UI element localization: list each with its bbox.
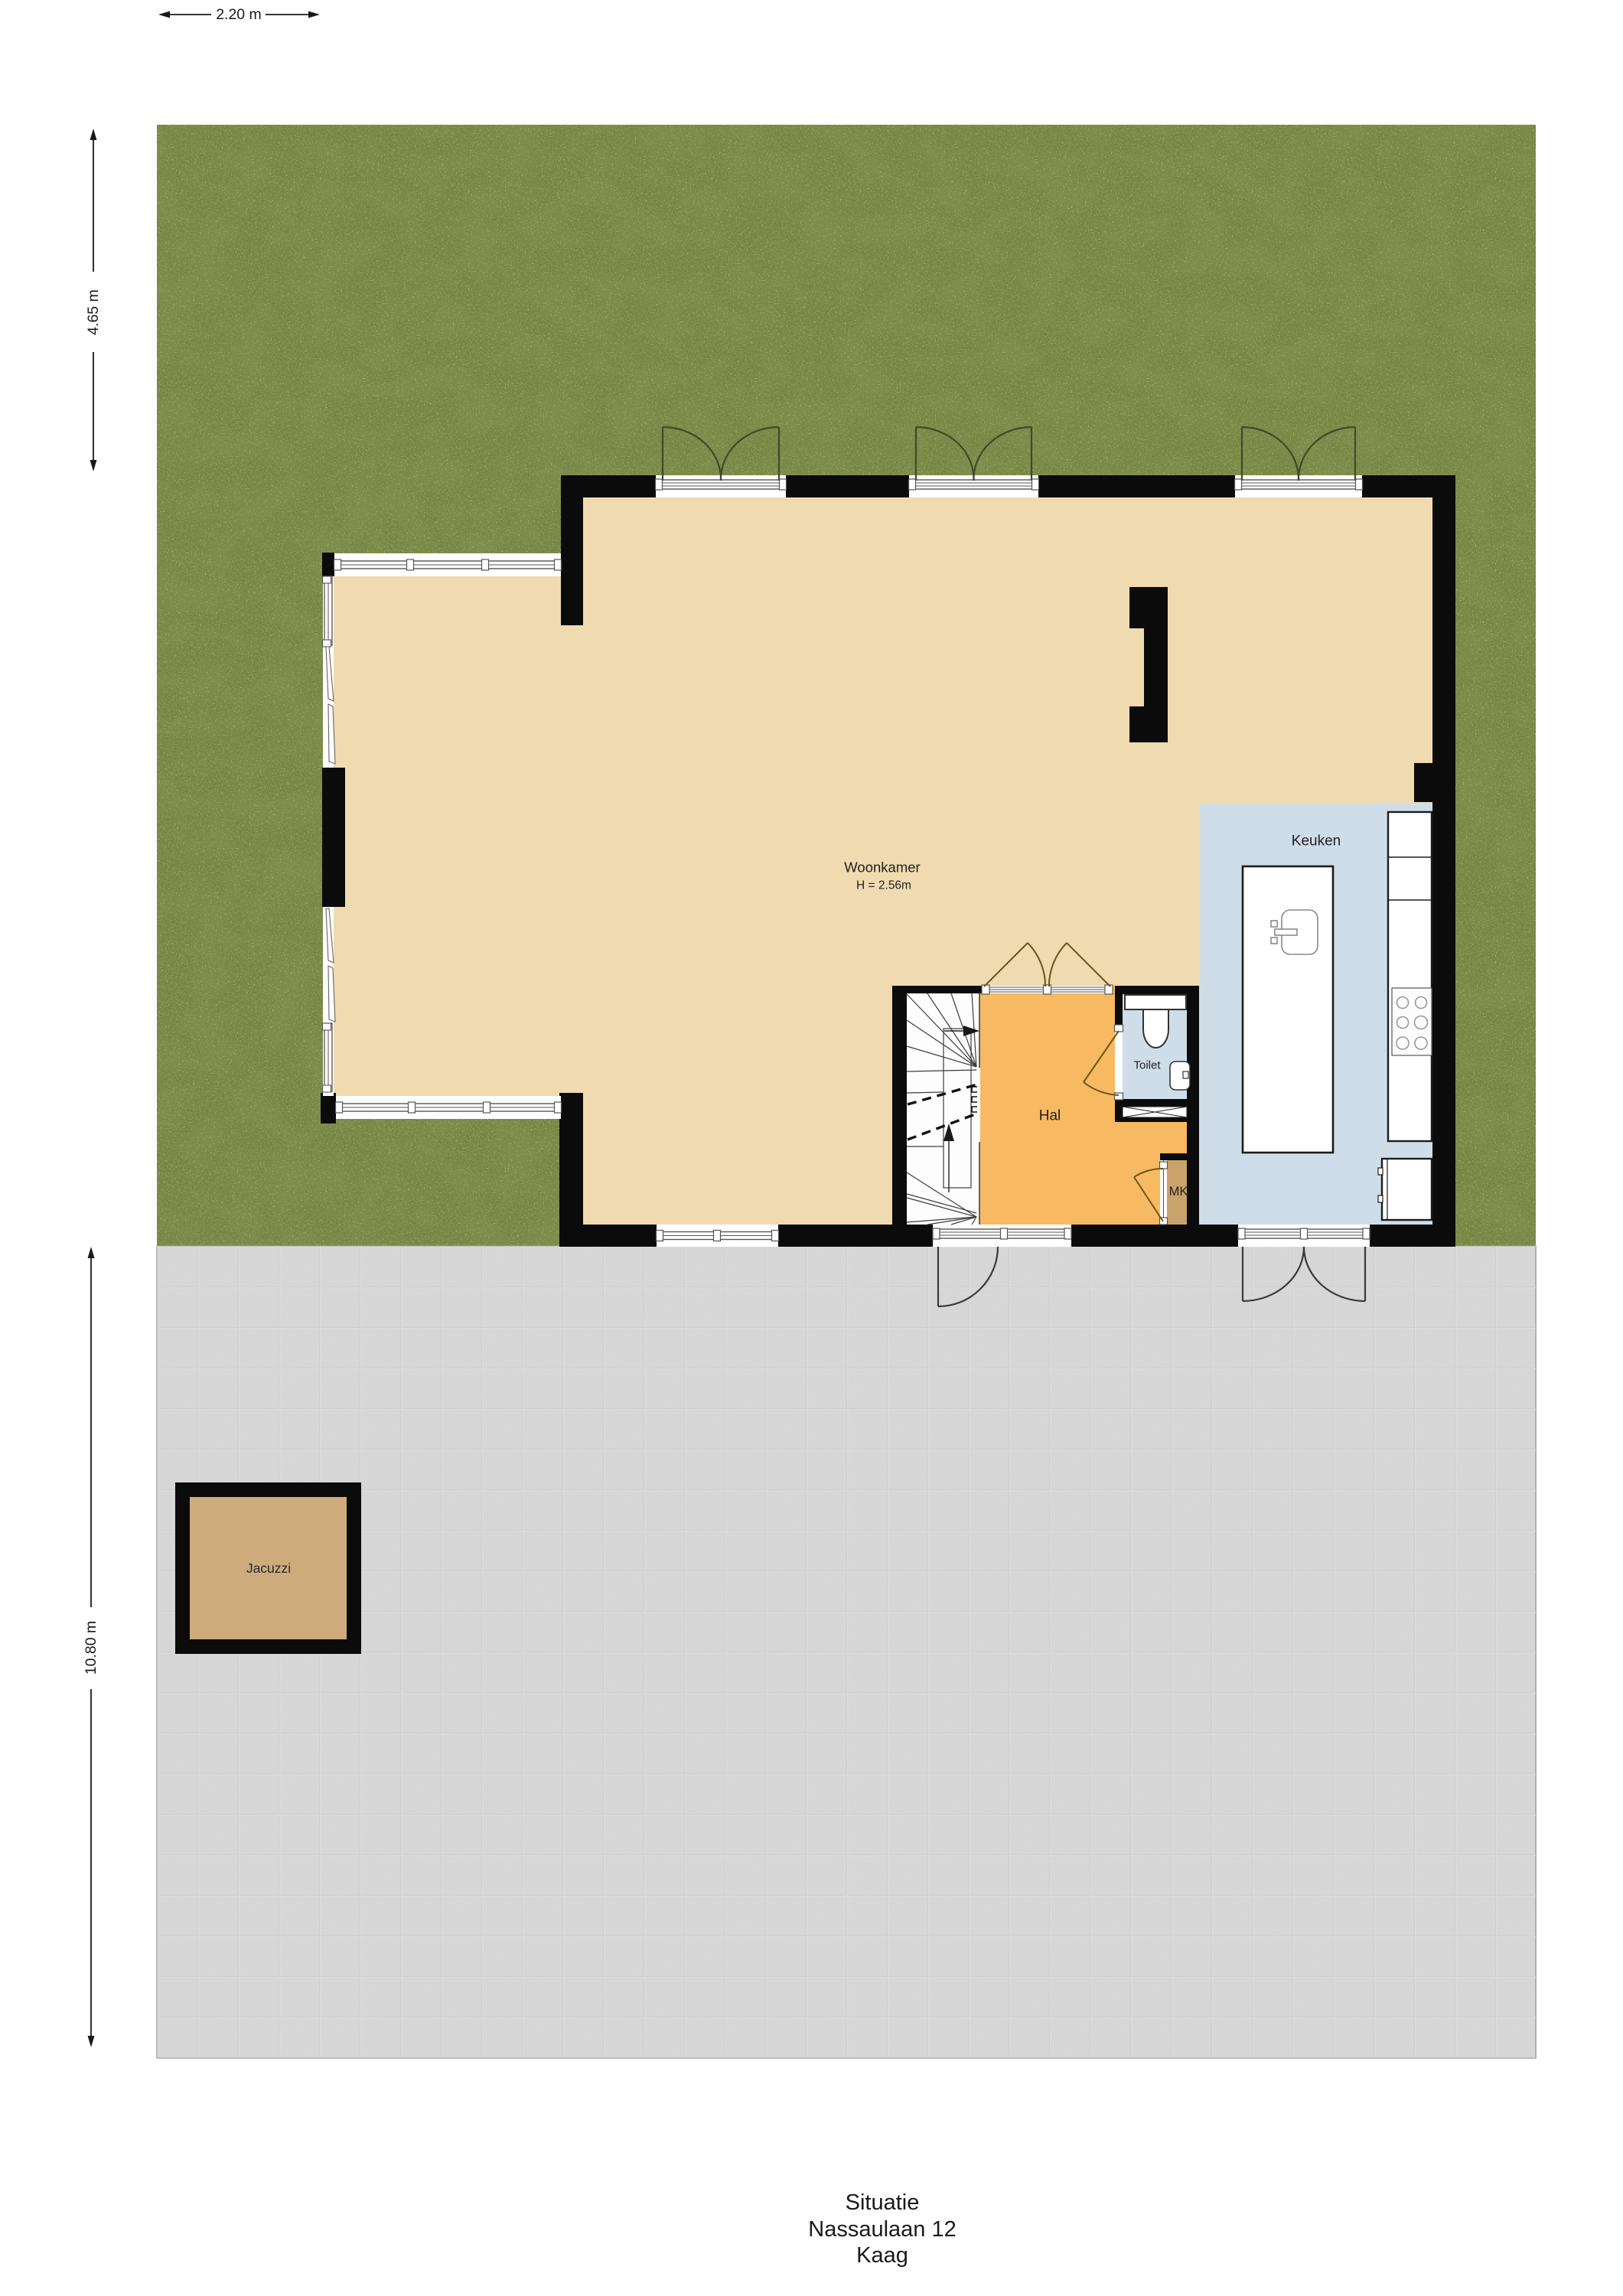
svg-text:10.80 m: 10.80 m <box>83 1621 99 1675</box>
svg-text:Jacuzzi: Jacuzzi <box>246 1561 291 1576</box>
svg-text:Kaag: Kaag <box>856 2243 908 2268</box>
svg-text:Hal: Hal <box>1039 1108 1061 1124</box>
svg-text:Toilet: Toilet <box>1133 1059 1161 1072</box>
svg-text:H = 2.56m: H = 2.56m <box>856 879 911 892</box>
svg-text:Keuken: Keuken <box>1292 833 1341 850</box>
svg-text:2.20 m: 2.20 m <box>216 6 262 23</box>
svg-text:Situatie: Situatie <box>846 2190 920 2215</box>
svg-text:Woonkamer: Woonkamer <box>844 859 920 876</box>
svg-text:Nassaulaan 12: Nassaulaan 12 <box>808 2217 956 2242</box>
svg-text:4.65 m: 4.65 m <box>85 289 102 335</box>
svg-text:MK: MK <box>1169 1185 1188 1199</box>
